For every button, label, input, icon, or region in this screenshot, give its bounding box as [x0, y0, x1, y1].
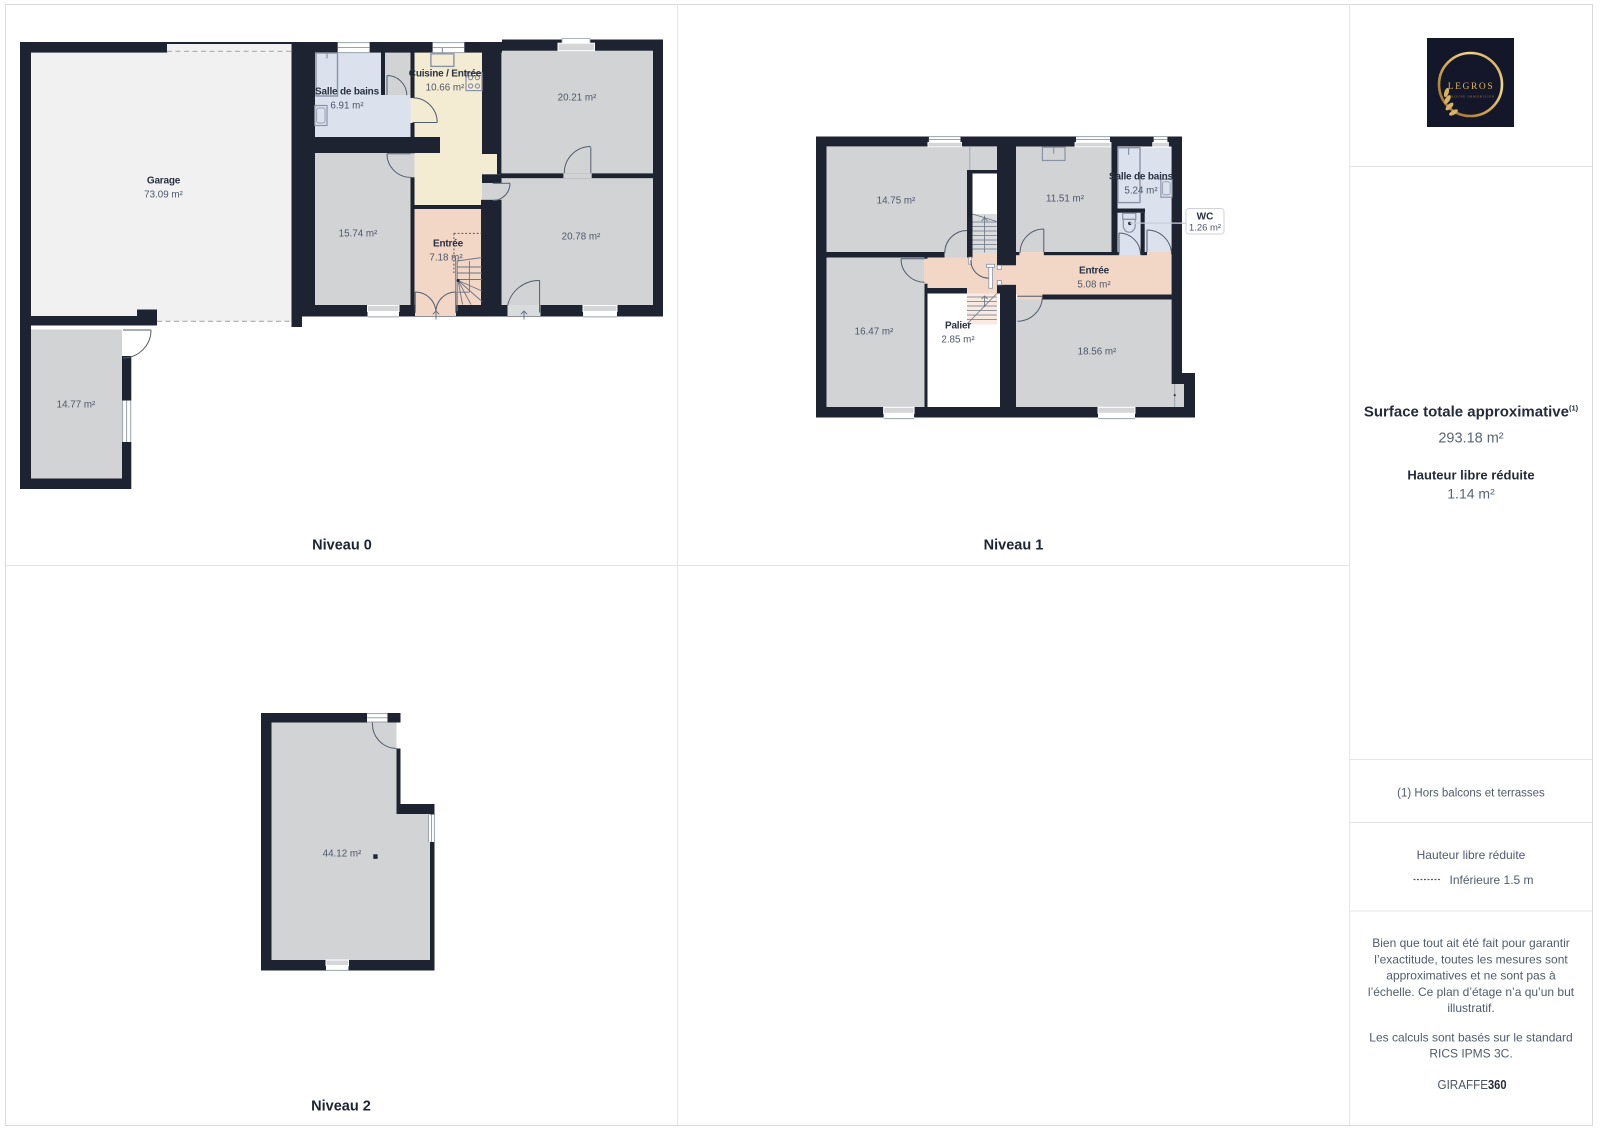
svg-text:5.24 m²: 5.24 m² [1124, 186, 1158, 197]
svg-text:Garage: Garage [147, 176, 181, 187]
svg-text:360: 360 [1488, 1077, 1507, 1092]
svg-text:7.18 m²: 7.18 m² [429, 253, 463, 264]
svg-text:(1) Hors balcons et terrasses: (1) Hors balcons et terrasses [1397, 788, 1545, 800]
svg-text:LEGROS: LEGROS [1448, 82, 1495, 92]
svg-text:14.75 m²: 14.75 m² [877, 196, 916, 207]
svg-text:Salle de bains: Salle de bains [315, 87, 380, 98]
svg-text:293.18 m²: 293.18 m² [1438, 431, 1503, 447]
svg-text:73.09 m²: 73.09 m² [144, 190, 183, 201]
svg-text:Niveau 0: Niveau 0 [312, 538, 372, 554]
svg-text:Bien que tout ait été fait pou: Bien que tout ait été fait pour garantir [1372, 936, 1569, 950]
svg-text:illustratif.: illustratif. [1447, 1001, 1494, 1015]
svg-text:Inférieure 1.5 m: Inférieure 1.5 m [1450, 873, 1534, 887]
svg-text:approximatives et ne sont pas: approximatives et ne sont pas à [1386, 969, 1556, 983]
svg-text:44.12 m²: 44.12 m² [323, 849, 362, 860]
svg-text:GROUPE IMMOBILIER: GROUPE IMMOBILIER [1448, 95, 1495, 99]
svg-text:l’exactitude, toutes les mesur: l’exactitude, toutes les mesures sont [1374, 952, 1568, 966]
svg-text:1.14 m²: 1.14 m² [1447, 486, 1495, 502]
svg-text:Cuisine / Entrée: Cuisine / Entrée [409, 69, 482, 80]
svg-text:Niveau 2: Niveau 2 [311, 1099, 371, 1115]
svg-text:GIRAFFE: GIRAFFE [1438, 1077, 1489, 1092]
svg-text:l’échelle. Ce plan d’étage n’a: l’échelle. Ce plan d’étage n’a qu’un but [1368, 985, 1575, 999]
svg-text:Hauteur libre réduite: Hauteur libre réduite [1407, 468, 1534, 483]
svg-text:14.77 m²: 14.77 m² [57, 400, 96, 411]
svg-text:18.56 m²: 18.56 m² [1078, 347, 1117, 358]
svg-text:11.51 m²: 11.51 m² [1046, 194, 1085, 205]
svg-text:5.08 m²: 5.08 m² [1077, 280, 1111, 291]
svg-text:10.66 m²: 10.66 m² [426, 83, 465, 94]
svg-text:WC: WC [1197, 212, 1214, 223]
svg-text:Entrée: Entrée [1079, 266, 1110, 277]
svg-text:Surface totale approximative(1: Surface totale approximative(1) [1364, 404, 1579, 421]
svg-text:16.47 m²: 16.47 m² [855, 327, 894, 338]
svg-text:Les calculs sont basés sur le: Les calculs sont basés sur le standard [1369, 1031, 1572, 1045]
svg-text:Salle de bains: Salle de bains [1109, 172, 1174, 183]
svg-text:Niveau 1: Niveau 1 [984, 538, 1044, 554]
svg-text:Hauteur libre réduite: Hauteur libre réduite [1417, 848, 1526, 862]
svg-text:RICS IPMS 3C.: RICS IPMS 3C. [1429, 1047, 1512, 1061]
svg-text:15.74 m²: 15.74 m² [339, 229, 378, 240]
svg-text:Entrée: Entrée [433, 239, 464, 250]
svg-text:Palier: Palier [945, 321, 971, 332]
svg-text:2.85 m²: 2.85 m² [941, 335, 975, 346]
svg-text:20.78 m²: 20.78 m² [562, 232, 601, 243]
svg-text:20.21 m²: 20.21 m² [558, 93, 597, 104]
svg-text:6.91 m²: 6.91 m² [330, 101, 364, 112]
svg-text:1.26 m²: 1.26 m² [1189, 223, 1221, 234]
